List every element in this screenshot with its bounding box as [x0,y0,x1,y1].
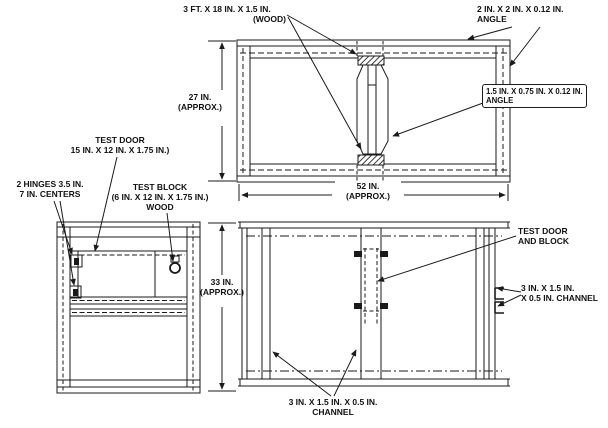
dimension-33in-approx: (APPROX.) [190,287,254,297]
label-test-door-line2: 15 IN. X 12 IN. X 1.75 IN.) [58,145,182,155]
label-test-block-line3: WOOD [100,202,220,212]
label-test-block-line1: TEST BLOCK [100,182,220,192]
drawing-linework [0,0,608,428]
label-wood-panel-line2: (WOOD) [166,14,288,24]
label-hinges: 2 HINGES 3.5 IN. 7 IN. CENTERS [4,179,96,199]
dimension-52in-value: 52 IN. [335,181,401,191]
dimension-33in-label: 33 IN. (APPROX.) [190,277,254,297]
dimension-27in-approx: (APPROX.) [167,102,233,112]
label-wood-panel: 3 FT. X 18 IN. X 1.5 IN. (WOOD) [166,4,288,24]
test-fixture-drawing: 3 FT. X 18 IN. X 1.5 IN. (WOOD) 2 IN. X … [0,0,608,428]
label-hinges-line1: 2 HINGES 3.5 IN. [4,179,96,189]
dimension-52in-approx: (APPROX.) [335,191,401,201]
label-channel-bottom-line1: 3 IN. X 1.5 IN. X 0.5 IN. [257,397,409,407]
label-angle-1-5in-line1: 1.5 IN. X 0.75 IN. X 0.12 IN. [486,87,583,96]
label-wood-panel-line1: 3 FT. X 18 IN. X 1.5 IN. [166,4,288,14]
label-angle-2in: 2 IN. X 2 IN. X 0.12 IN. ANGLE [477,4,603,24]
top-view [237,40,510,182]
label-test-block-line2: (6 IN. X 12 IN. X 1.75 IN.) [100,192,220,202]
label-test-door-line1: TEST DOOR [58,135,182,145]
label-test-door: TEST DOOR 15 IN. X 12 IN. X 1.75 IN.) [58,135,182,155]
label-angle-2in-line2: ANGLE [477,14,603,24]
door-clips [354,251,388,309]
top-view-door-assembly [357,41,388,181]
label-test-door-and-block-line2: AND BLOCK [518,236,598,246]
dimension-52in-label: 52 IN. (APPROX.) [335,181,401,201]
label-test-block: TEST BLOCK (6 IN. X 12 IN. X 1.75 IN.) W… [100,182,220,212]
label-hinges-line2: 7 IN. CENTERS [4,189,96,199]
hinge-top [71,255,82,267]
channel-cross-sections [495,288,504,313]
side-view [57,222,200,393]
label-channel-bottom-line2: CHANNEL [257,407,409,417]
label-angle-1-5in-line2: ANGLE [486,96,583,105]
dimension-33in [208,223,236,391]
dimension-33in-value: 33 IN. [190,277,254,287]
label-channel-bottom: 3 IN. X 1.5 IN. X 0.5 IN. CHANNEL [257,397,409,417]
label-angle-1-5in-box: 1.5 IN. X 0.75 IN. X 0.12 IN. ANGLE [482,84,587,108]
front-view [238,222,510,386]
block-knob [170,256,180,273]
label-channel-right-line1: 3 IN. X 1.5 IN. [521,283,607,293]
label-test-door-and-block: TEST DOOR AND BLOCK [518,226,598,246]
label-angle-2in-line1: 2 IN. X 2 IN. X 0.12 IN. [477,4,603,14]
hinge-bottom [70,286,81,298]
label-channel-right-line2: X 0.5 IN. CHANNEL [521,293,607,303]
label-test-door-and-block-line1: TEST DOOR [518,226,598,236]
dimension-27in-value: 27 IN. [167,92,233,102]
label-channel-right: 3 IN. X 1.5 IN. X 0.5 IN. CHANNEL [521,283,607,303]
dimension-27in-label: 27 IN. (APPROX.) [167,92,233,112]
